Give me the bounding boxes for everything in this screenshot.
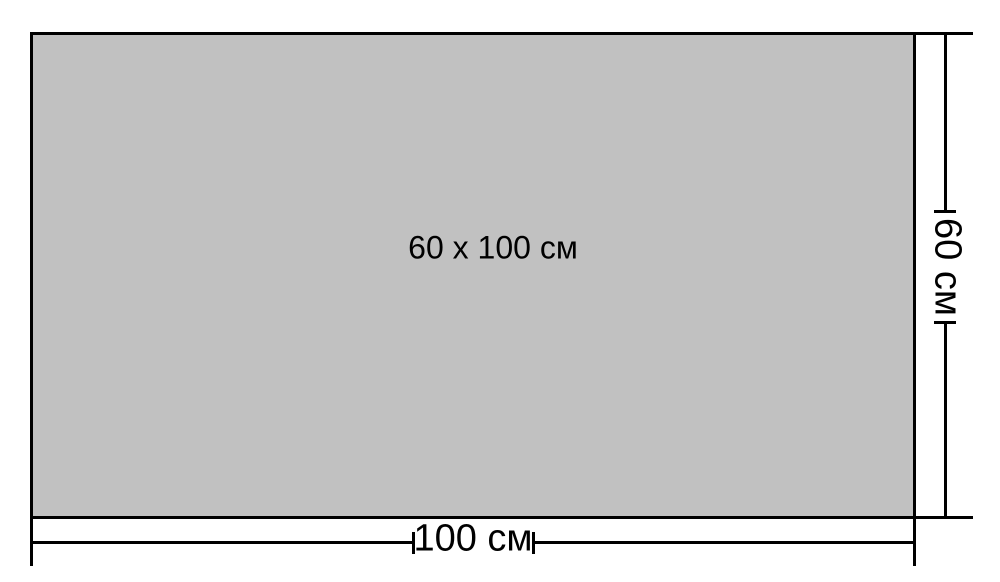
height-dimension-line-bottom — [944, 323, 947, 516]
width-dimension-label: 100 см — [413, 518, 532, 561]
rectangle-size-label: 60 x 100 см — [408, 230, 578, 267]
height-dimension-tick-top — [934, 210, 956, 213]
width-dimension-line-right — [533, 541, 916, 544]
rectangle-shape — [30, 32, 916, 519]
height-dimension-line-top — [944, 35, 947, 212]
width-dimension-line-left — [30, 541, 413, 544]
height-dimension-label: 60 см — [926, 218, 969, 316]
height-dimension-tick-bottom — [934, 321, 956, 324]
size-diagram: 60 x 100 см 100 см 60 см — [0, 0, 1000, 582]
extension-line-bottom-right — [916, 516, 973, 519]
